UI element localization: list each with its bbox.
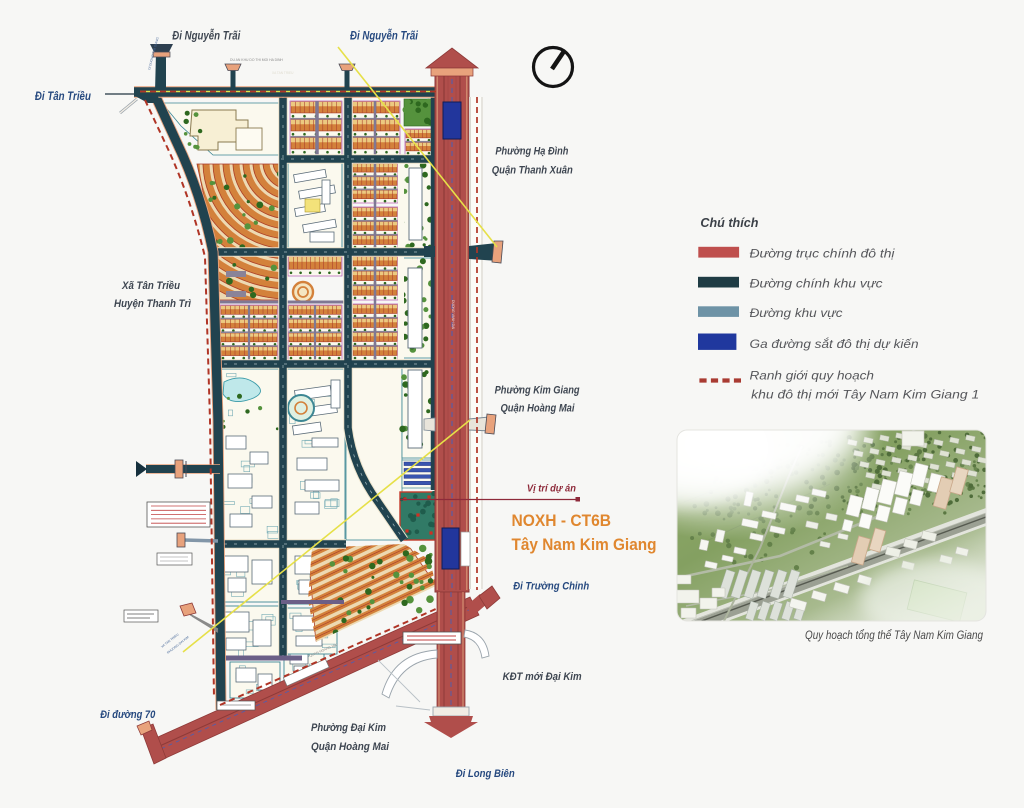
svg-text:Đường chính khu vực: Đường chính khu vực xyxy=(750,279,883,291)
svg-text:Xã Tân Triều: Xã Tân Triều xyxy=(121,280,180,292)
svg-text:DUONG VANH DAI: DUONG VANH DAI xyxy=(451,300,455,329)
svg-text:Huyện Thanh Trì: Huyện Thanh Trì xyxy=(114,298,191,310)
svg-text:khu đô thị mới Tây Nam Kim Gia: khu đô thị mới Tây Nam Kim Giang 1 xyxy=(751,390,979,402)
svg-text:Đường trục chính đô thị: Đường trục chính đô thị xyxy=(750,249,896,261)
svg-text:Quận Thanh Xuân: Quận Thanh Xuân xyxy=(492,165,573,177)
svg-text:Quận Hoàng Mai: Quận Hoàng Mai xyxy=(501,403,576,415)
svg-text:Tây Nam Kim Giang: Tây Nam Kim Giang xyxy=(512,535,657,554)
svg-text:DU AN KHU DO THI MOI HA DINH: DU AN KHU DO THI MOI HA DINH xyxy=(230,58,283,62)
svg-text:Đi Tân Triều: Đi Tân Triều xyxy=(35,91,91,103)
svg-text:Đi đường 70: Đi đường 70 xyxy=(100,709,156,721)
svg-text:Đi Long Biên: Đi Long Biên xyxy=(456,768,515,780)
svg-text:Phường Hạ Đình: Phường Hạ Đình xyxy=(495,146,568,158)
svg-text:Ga đường sắt đô thị dự kiến: Ga đường sắt đô thị dự kiến xyxy=(750,338,919,351)
svg-text:Quận Hoàng Mai: Quận Hoàng Mai xyxy=(311,741,390,753)
svg-text:Đường khu vực: Đường khu vực xyxy=(750,308,843,320)
svg-text:Phường Đại Kim: Phường Đại Kim xyxy=(311,722,386,734)
svg-text:Ranh giới quy hoạch: Ranh giới quy hoạch xyxy=(750,371,875,383)
svg-text:XA TAN TRIEU: XA TAN TRIEU xyxy=(272,71,294,75)
svg-text:Quy hoạch tổng thể Tây Nam Kim: Quy hoạch tổng thể Tây Nam Kim Giang xyxy=(805,628,983,642)
svg-text:Chú thích: Chú thích xyxy=(700,216,758,230)
svg-text:KĐT mới Đại Kim: KĐT mới Đại Kim xyxy=(503,671,582,683)
svg-text:Vị trí dự án: Vị trí dự án xyxy=(527,484,576,495)
svg-text:Đi Nguyễn Trãi: Đi Nguyễn Trãi xyxy=(350,30,419,43)
svg-text:Đi Trường Chinh: Đi Trường Chinh xyxy=(513,581,589,593)
svg-text:NOXH - CT6B: NOXH - CT6B xyxy=(512,511,612,530)
svg-text:Phường Kim Giang: Phường Kim Giang xyxy=(495,385,580,397)
svg-text:Đi Nguyễn Trãi: Đi Nguyễn Trãi xyxy=(172,30,241,43)
